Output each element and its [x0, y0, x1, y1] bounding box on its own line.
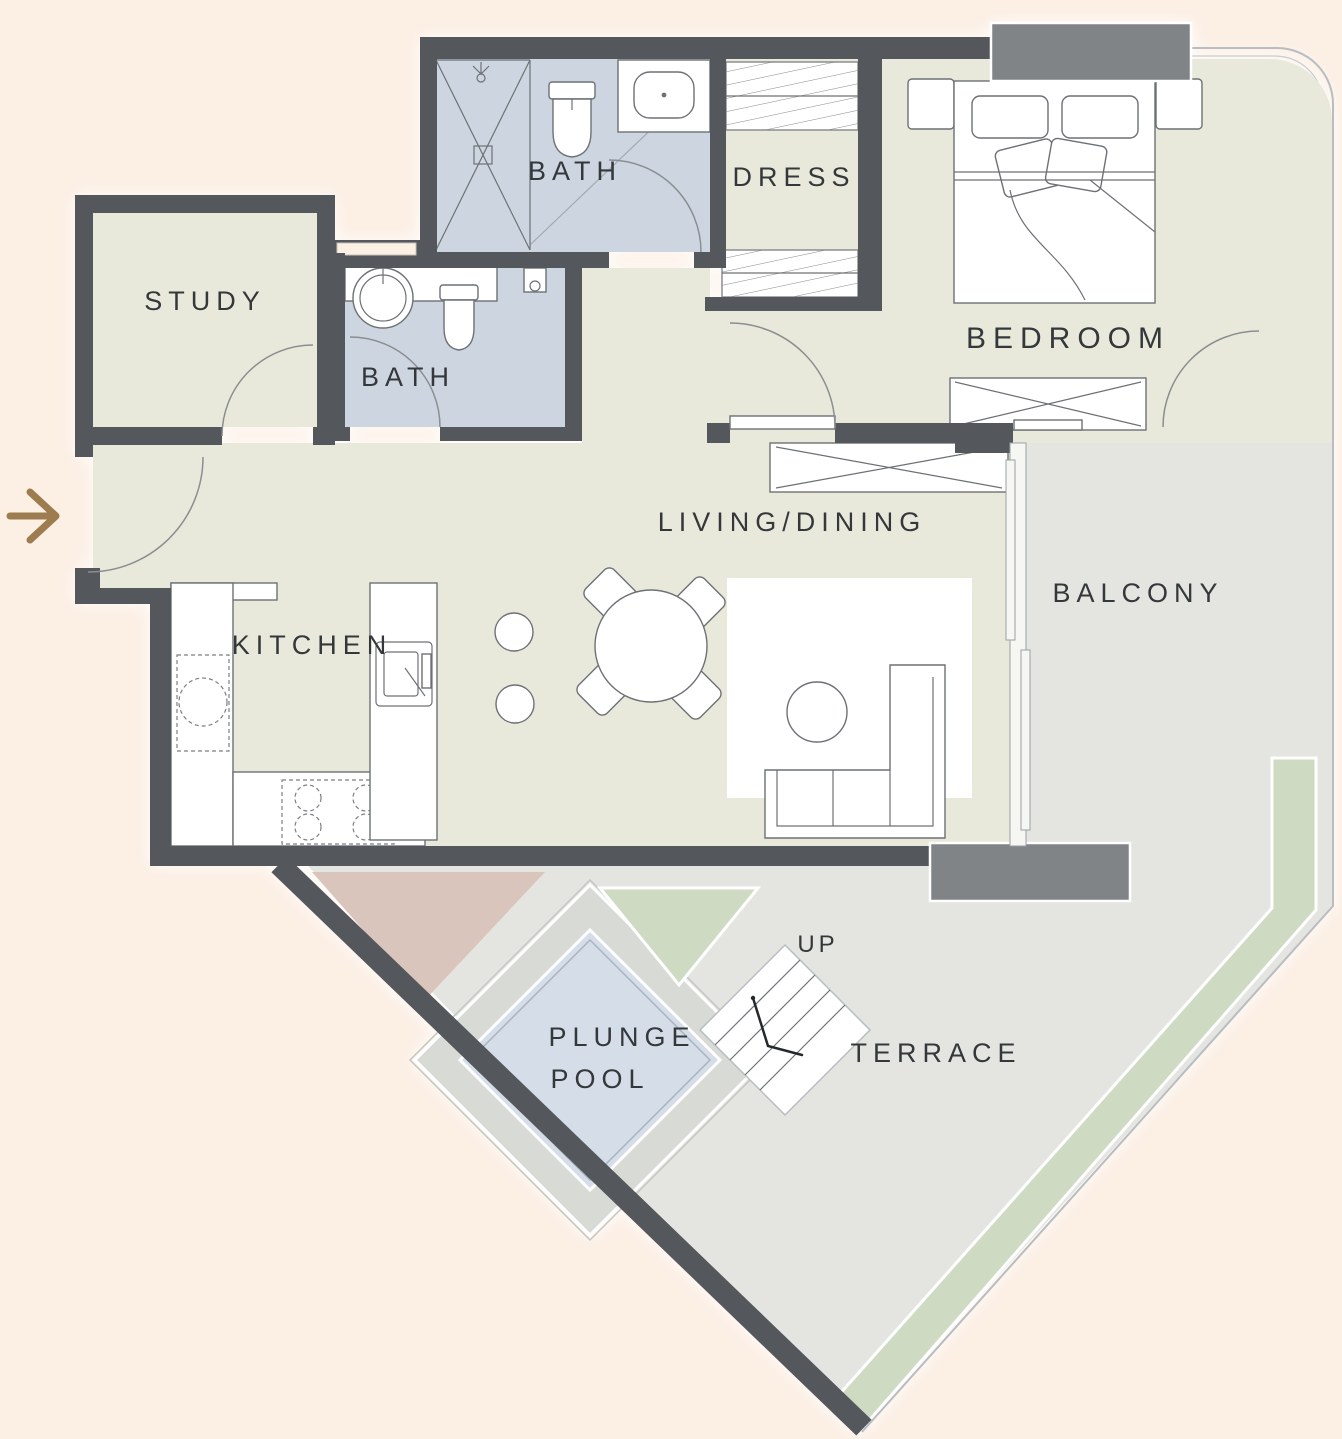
- living-dining-label: LIVING/DINING: [658, 507, 927, 537]
- round-basin-icon: [353, 268, 413, 328]
- kitchen-island: [370, 583, 437, 840]
- floor-plan-page: STUDY BATH DRESS BEDROOM BATH LIVING/DIN…: [0, 0, 1342, 1439]
- south-window-header: [930, 843, 1130, 901]
- window-niche: [337, 243, 416, 255]
- nightstand-icon: [1156, 79, 1202, 129]
- tap-icon: [524, 268, 546, 292]
- toilet-icon: [549, 82, 595, 157]
- counter: [171, 583, 233, 846]
- nightstand-icon: [908, 79, 954, 129]
- stool-icon: [496, 685, 534, 723]
- corridor-floor-1: [582, 268, 710, 443]
- coffee-table-icon: [787, 682, 847, 742]
- dress-label: DRESS: [732, 162, 855, 192]
- balcony-glass-wall: [1006, 443, 1030, 846]
- wardrobe-icon: [722, 250, 858, 297]
- stool-icon: [495, 613, 533, 651]
- toilet-icon: [440, 285, 478, 350]
- study-label: STUDY: [144, 286, 266, 316]
- balcony-label: BALCONY: [1052, 578, 1223, 608]
- bedroom-window-header: [991, 23, 1191, 81]
- bath-middle-label: BATH: [361, 362, 455, 392]
- floor-plan: STUDY BATH DRESS BEDROOM BATH LIVING/DIN…: [0, 0, 1342, 1439]
- tv-console-icon: [950, 378, 1146, 430]
- living-door-leaf: [730, 416, 835, 429]
- bath-top-label: BATH: [528, 156, 622, 186]
- bedroom-label: BEDROOM: [966, 322, 1170, 355]
- plunge-pool-label-line2: POOL: [550, 1064, 649, 1094]
- kitchen-label: KITCHEN: [232, 630, 393, 660]
- plunge-pool-label-line1: PLUNGE: [548, 1022, 695, 1052]
- sink-icon: [618, 60, 710, 132]
- terrace-label: TERRACE: [850, 1038, 1021, 1068]
- stairs-up-label: UP: [797, 931, 838, 958]
- study-floor: [93, 213, 317, 427]
- wardrobe-icon: [726, 62, 858, 130]
